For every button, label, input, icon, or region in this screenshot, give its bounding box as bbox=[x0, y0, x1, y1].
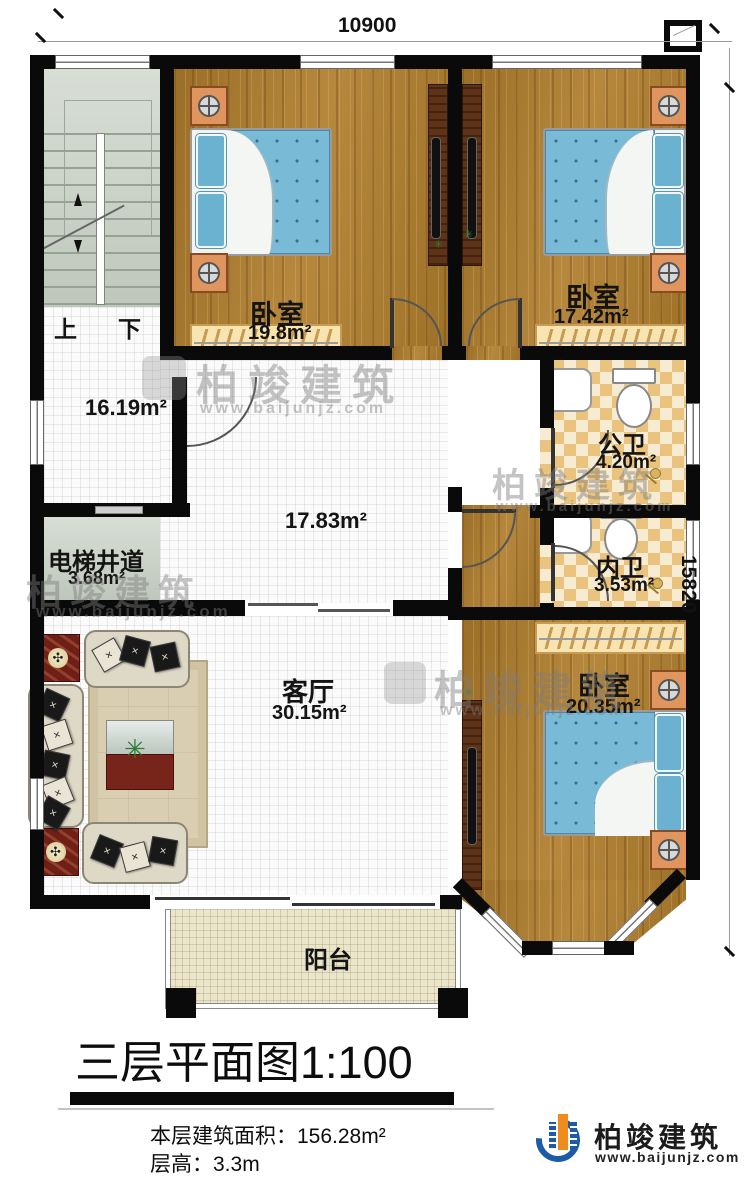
floor-area-label: 本层建筑面积： bbox=[150, 1125, 297, 1148]
window bbox=[686, 403, 700, 465]
nightstand bbox=[650, 830, 688, 870]
wardrobe bbox=[535, 622, 686, 654]
floor-height-line: 层高：3.3m bbox=[150, 1148, 260, 1178]
sofa-cushion: ✕ bbox=[150, 642, 181, 673]
tv-icon bbox=[468, 748, 476, 844]
sliding-door-leaf bbox=[318, 609, 390, 612]
brand-logo-building-icon bbox=[549, 1122, 556, 1148]
dimension-line-top bbox=[38, 41, 732, 42]
plan-title-text: 三层平面图 bbox=[75, 1037, 300, 1088]
window bbox=[300, 55, 395, 69]
bedroom-door-gap bbox=[466, 346, 520, 360]
floor-area-line: 本层建筑面积：156.28m² bbox=[150, 1120, 386, 1150]
balcony-name: 阳台 bbox=[304, 940, 352, 975]
floor-height-label: 层高： bbox=[150, 1153, 213, 1176]
sliding-door-leaf bbox=[248, 603, 318, 606]
nightstand-knob bbox=[658, 839, 680, 861]
nightstand bbox=[190, 253, 228, 293]
window bbox=[55, 55, 150, 69]
dimension-width: 10900 bbox=[338, 14, 396, 38]
bedroom-top-right-area: 17.42m² bbox=[554, 306, 629, 329]
flue-box bbox=[664, 20, 702, 52]
coffee-table-plant-icon: ✳ bbox=[124, 736, 146, 762]
nightstand-knob bbox=[198, 262, 220, 284]
nightstand-knob bbox=[198, 95, 220, 117]
sofa-cushion: ✕ bbox=[40, 750, 71, 781]
nightstand-knob bbox=[658, 262, 680, 284]
title-underline-bar bbox=[70, 1092, 454, 1105]
stair-down-arrow bbox=[74, 240, 82, 253]
bed-pillow bbox=[196, 134, 226, 188]
tv-icon bbox=[468, 138, 476, 238]
plan-title: 三层平面图1:100 bbox=[75, 1026, 413, 1091]
sofa-cushion: ✕ bbox=[148, 836, 178, 866]
dimension-height: 15820 bbox=[676, 555, 700, 613]
balcony-rail bbox=[165, 1003, 461, 1009]
watermark-logo-icon bbox=[384, 662, 426, 704]
balcony-column bbox=[438, 988, 468, 1018]
nightstand-knob bbox=[658, 95, 680, 117]
bed-pillow bbox=[653, 192, 683, 248]
brand-logo-building-icon bbox=[570, 1120, 577, 1150]
plant-icon: ✳ bbox=[464, 230, 473, 241]
dimension-line-right bbox=[729, 48, 730, 956]
toilet-tank-icon bbox=[612, 368, 656, 384]
nightstand bbox=[190, 86, 228, 126]
bed-pillow bbox=[655, 774, 683, 832]
tv-icon bbox=[432, 138, 440, 238]
balcony-sliding-leaf bbox=[292, 903, 435, 906]
wall-hall-corridor bbox=[172, 467, 187, 503]
brand-logo-building-icon bbox=[558, 1114, 568, 1150]
bed-pillow bbox=[653, 134, 683, 188]
inner-bath-area: 3.53m² bbox=[594, 575, 654, 597]
toilet-bowl-icon bbox=[616, 384, 652, 428]
nightstand bbox=[650, 253, 688, 293]
bay-wall bbox=[522, 941, 552, 955]
plant-pot-icon: ✣ bbox=[48, 648, 68, 668]
nightstand bbox=[650, 670, 688, 710]
elevator-door bbox=[95, 506, 143, 514]
bedroom-top-left-area: 19.8m² bbox=[248, 322, 311, 345]
nightstand-knob bbox=[658, 679, 680, 701]
dimension-tick bbox=[709, 23, 720, 34]
window bbox=[492, 55, 642, 69]
floor-height-value: 3.3m bbox=[213, 1153, 260, 1176]
stair-up-arrow bbox=[74, 193, 82, 206]
stair-down-label: 下 bbox=[118, 310, 141, 344]
wall-right bbox=[686, 55, 700, 880]
plant-icon: ✳ bbox=[434, 240, 443, 251]
dimension-tick bbox=[53, 8, 64, 19]
watermark-url: www.baijunjz.com bbox=[440, 702, 626, 720]
wall-corridor-bedroom bbox=[448, 487, 462, 512]
bed-pillow bbox=[196, 192, 226, 248]
plant-pot-icon: ✣ bbox=[46, 842, 66, 862]
stair-up-label: 上 bbox=[54, 310, 77, 344]
balcony-column bbox=[166, 988, 196, 1018]
watermark-logo-icon bbox=[142, 356, 186, 400]
bay-window bbox=[552, 941, 606, 955]
corridor-area: 17.83m² bbox=[285, 508, 367, 534]
floor-plan-canvas: 上 下 ✳ ✳ ✳ ✣ ✣ ✕ ✕ ✕ ✕ bbox=[0, 0, 750, 1182]
nightstand bbox=[650, 86, 688, 126]
wall-bedroom-divider bbox=[448, 55, 462, 360]
floor-area-value: 156.28m² bbox=[297, 1125, 386, 1148]
watermark-url: www.baijunjz.com bbox=[200, 400, 386, 418]
title-underline-thin bbox=[58, 1108, 494, 1110]
watermark-url: www.baijunjz.com bbox=[496, 498, 673, 515]
wall-bath-bottom bbox=[448, 607, 700, 620]
balcony-sliding-leaf bbox=[155, 897, 290, 900]
bed-pillow bbox=[655, 714, 683, 772]
living-area: 30.15m² bbox=[272, 702, 347, 725]
plan-scale: 1:100 bbox=[300, 1037, 413, 1088]
brand-website: www.baijunjz.com bbox=[595, 1149, 740, 1165]
watermark-url: www.baijunjz.com bbox=[36, 602, 231, 622]
bay-wall bbox=[604, 941, 634, 955]
window bbox=[30, 400, 44, 465]
wall-stair-bedroom bbox=[160, 55, 174, 360]
window bbox=[30, 778, 44, 830]
